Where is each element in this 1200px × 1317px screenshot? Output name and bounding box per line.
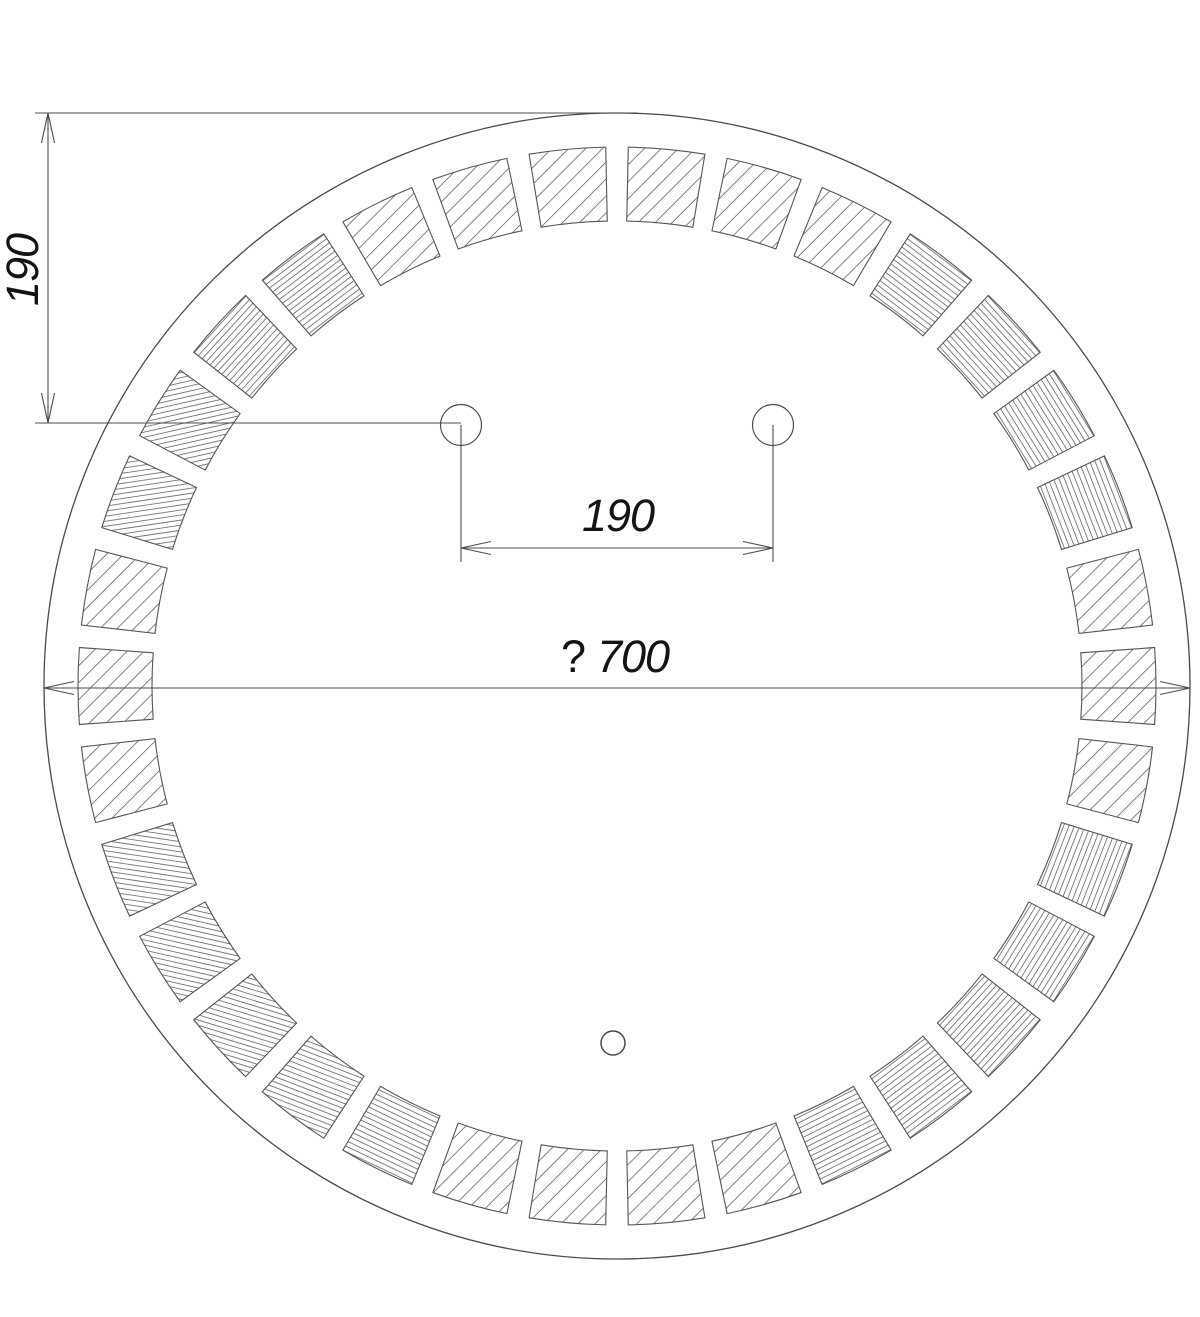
led-segment — [1067, 739, 1153, 823]
led-segment-hatch — [898, 800, 1189, 1101]
led-segment — [712, 1123, 801, 1214]
led-segment — [994, 902, 1094, 1002]
led-segment-hatch — [967, 534, 1200, 832]
led-segment-hatch — [419, 1034, 717, 1317]
drawing-page: 190 190 ? 700 — [0, 0, 1200, 1317]
led-segment — [343, 188, 440, 286]
vertical-offset-dimension-label: 190 — [0, 233, 48, 306]
led-segment-hatch — [95, 195, 398, 500]
led-segment — [140, 902, 240, 1002]
led-segment — [1067, 549, 1153, 633]
diameter-symbol-label: ? — [561, 631, 586, 682]
led-segment — [1081, 648, 1156, 725]
led-segment-hatch — [20, 751, 277, 983]
led-segment-hatch — [171, 952, 458, 1222]
led-segment-hatch — [689, 85, 987, 383]
led-segment — [529, 1145, 607, 1225]
led-segment-hatch — [511, 1034, 809, 1317]
dimension-labels: 190 190 ? 700 — [0, 233, 670, 682]
led-segment — [794, 188, 891, 286]
led-segment-hatch — [511, 34, 809, 332]
led-segment-hatch — [0, 534, 261, 832]
hole-spacing-dimension-label: 190 — [582, 490, 655, 541]
led-segment — [627, 147, 705, 227]
led-segment — [433, 158, 522, 249]
diameter-value-label: 700 — [597, 631, 670, 682]
mirror-technical-drawing: 190 190 ? 700 — [0, 0, 1200, 1317]
led-segment-hatch — [837, 872, 1140, 1177]
led-segment-hatch — [602, 1017, 900, 1315]
led-segment — [78, 648, 153, 725]
led-segment-hatch — [107, 895, 385, 1153]
led-segment — [262, 1036, 364, 1138]
touch-sensor-hole — [601, 1031, 625, 1055]
led-segment-hatch — [20, 389, 277, 621]
led-segment — [194, 974, 297, 1077]
led-segment-hatch — [328, 51, 626, 349]
led-segment — [994, 370, 1094, 470]
led-segment-hatch — [958, 626, 1200, 924]
led-segment-hatch — [0, 626, 270, 924]
mirror-outline-circle — [44, 113, 1190, 1259]
led-segment-hatch — [419, 34, 717, 332]
led-segment — [712, 158, 801, 249]
led-segment-hatch — [837, 195, 1140, 500]
led-segment-hatch — [898, 271, 1189, 572]
led-segment-hatch — [958, 442, 1200, 740]
led-segment — [140, 370, 240, 470]
led-segment-hatch — [602, 51, 900, 349]
